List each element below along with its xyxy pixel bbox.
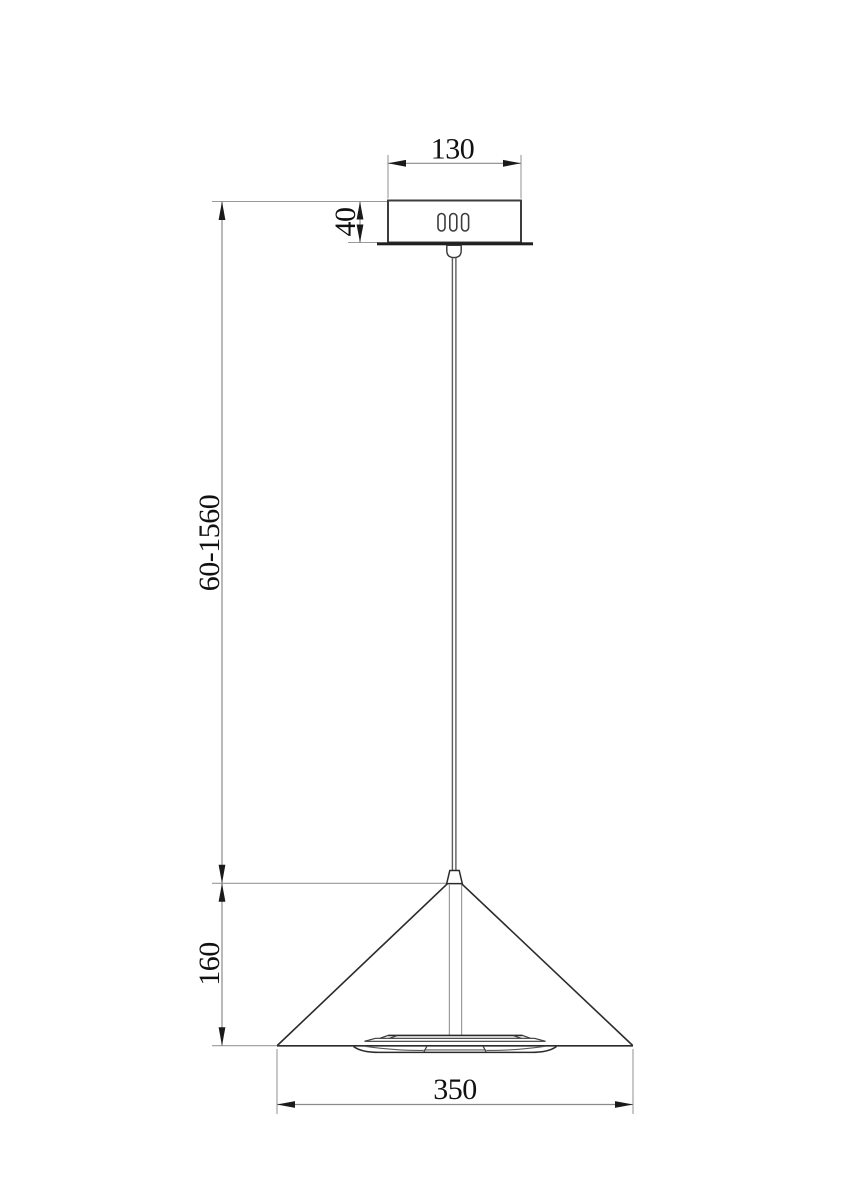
shade-top-stem: [447, 871, 463, 884]
dim-130-arrow-right: [503, 160, 521, 167]
shade-slant-left: [277, 884, 447, 1046]
drawing-canvas: 130 40 60-1560 160 350: [0, 0, 848, 1200]
diffuser-panel-divider-left: [424, 1046, 427, 1052]
ceiling-canopy: [377, 201, 533, 258]
dim-label-shade-diameter: 350: [433, 1073, 477, 1106]
dim-350-arrow-left: [277, 1101, 295, 1108]
cone-shade: [277, 871, 633, 1046]
bottom-diffuser: [354, 1035, 557, 1052]
dim-canopy-height: 40: [329, 202, 378, 243]
dim-label-canopy-height: 40: [329, 208, 362, 237]
dim-shade-height: 160: [193, 883, 277, 1045]
dim-350-arrow-right: [615, 1101, 633, 1108]
technical-drawing: 130 40 60-1560 160 350: [0, 0, 848, 1200]
dim-160-arrow-bottom: [219, 1027, 226, 1046]
dim-suspension-arrow-bottom: [219, 865, 226, 884]
suspension-cable: [452, 258, 456, 871]
dim-label-shade-height: 160: [193, 942, 226, 986]
diffuser-wing-curve-right: [487, 1046, 547, 1050]
dim-160-arrow-top: [219, 883, 226, 902]
dim-shade-diameter: 350: [277, 1049, 633, 1114]
dim-label-suspension-length: 60-1560: [193, 495, 226, 592]
dim-suspension-arrow-top: [219, 202, 226, 221]
shade-slant-right: [462, 884, 633, 1046]
dim-suspension-length: 60-1560: [193, 202, 448, 884]
dim-label-canopy-width: 130: [431, 133, 475, 166]
canopy-body: [388, 201, 521, 243]
dim-130-arrow-left: [388, 160, 406, 167]
diffuser-wing-curve-left: [364, 1046, 424, 1050]
dim-canopy-width: 130: [388, 133, 521, 199]
cable-grip: [447, 245, 461, 257]
diffuser-panel-divider-right: [483, 1046, 486, 1052]
